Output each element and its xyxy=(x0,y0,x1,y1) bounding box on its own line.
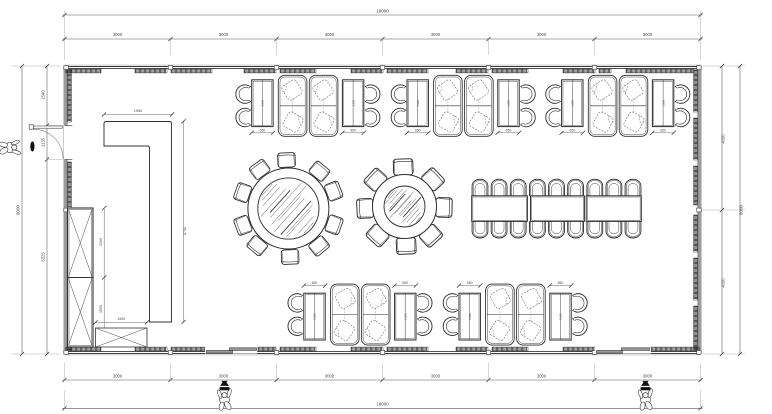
svg-text:650: 650 xyxy=(569,128,575,132)
svg-text:3000: 3000 xyxy=(537,32,547,37)
svg-text:3000: 3000 xyxy=(325,373,335,378)
svg-text:4000: 4000 xyxy=(721,278,726,288)
svg-text:1300: 1300 xyxy=(468,313,472,320)
svg-text:1540: 1540 xyxy=(40,90,45,100)
svg-text:1300: 1300 xyxy=(571,100,575,107)
svg-text:18000: 18000 xyxy=(376,8,389,13)
svg-text:18000: 18000 xyxy=(376,402,389,407)
svg-text:650: 650 xyxy=(558,281,564,285)
svg-text:3000: 3000 xyxy=(113,373,123,378)
svg-text:4000: 4000 xyxy=(721,134,726,144)
svg-text:3000: 3000 xyxy=(431,373,441,378)
svg-text:1300: 1300 xyxy=(559,313,563,320)
svg-text:650: 650 xyxy=(350,128,356,132)
svg-text:650: 650 xyxy=(260,128,266,132)
svg-text:650: 650 xyxy=(415,128,421,132)
svg-text:1500: 1500 xyxy=(99,305,103,313)
svg-text:1950: 1950 xyxy=(134,109,142,113)
svg-text:650: 650 xyxy=(660,128,666,132)
svg-text:3000: 3000 xyxy=(431,32,441,37)
svg-text:3000: 3000 xyxy=(643,373,653,378)
svg-text:650: 650 xyxy=(467,281,473,285)
svg-text:3000: 3000 xyxy=(113,32,123,37)
svg-text:8000: 8000 xyxy=(15,204,20,215)
svg-text:1135: 1135 xyxy=(40,137,45,147)
svg-text:650: 650 xyxy=(312,281,318,285)
svg-text:1300: 1300 xyxy=(507,100,511,107)
svg-text:3000: 3000 xyxy=(537,373,547,378)
svg-text:3000: 3000 xyxy=(219,32,229,37)
svg-text:1300: 1300 xyxy=(661,100,665,107)
svg-text:1300: 1300 xyxy=(416,100,420,107)
svg-text:650: 650 xyxy=(506,128,512,132)
svg-text:3000: 3000 xyxy=(219,373,229,378)
svg-text:2100: 2100 xyxy=(99,238,103,246)
svg-text:650: 650 xyxy=(402,281,408,285)
svg-text:5740: 5740 xyxy=(183,227,187,235)
svg-text:5325: 5325 xyxy=(40,252,45,262)
svg-text:1300: 1300 xyxy=(313,313,317,320)
svg-text:3000: 3000 xyxy=(643,32,653,37)
svg-text:8000: 8000 xyxy=(739,204,744,215)
svg-text:1300: 1300 xyxy=(403,313,407,320)
svg-text:1300: 1300 xyxy=(351,100,355,107)
svg-text:1500: 1500 xyxy=(117,317,125,321)
svg-text:1300: 1300 xyxy=(261,100,265,107)
svg-text:3000: 3000 xyxy=(325,32,335,37)
